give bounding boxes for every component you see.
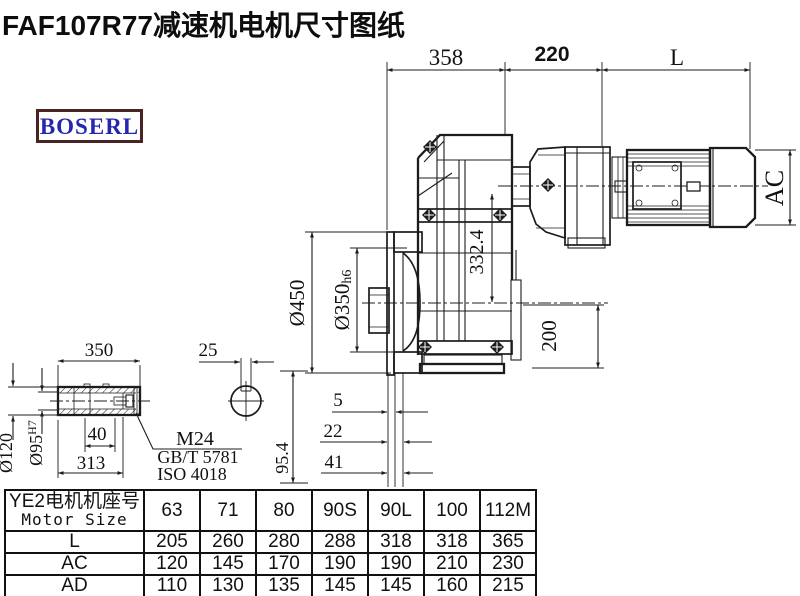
dim-450: Ø450: [285, 280, 309, 327]
cell: 145: [200, 553, 256, 575]
header-cn: YE2电机机座号: [6, 492, 143, 512]
table-row: L 205 260 280 288 318 318 365: [5, 531, 536, 553]
dim-5: 5: [333, 390, 343, 411]
col-90S: 90S: [312, 490, 368, 531]
row-label-L: L: [5, 531, 144, 553]
cell: 135: [256, 575, 312, 596]
dim-350: 350: [85, 340, 114, 361]
cell: 288: [312, 531, 368, 553]
cell: 160: [424, 575, 480, 596]
col-90L: 90L: [368, 490, 424, 531]
dim-40: 40: [88, 424, 107, 445]
cell: 170: [256, 553, 312, 575]
hollow-shaft-detail: [58, 384, 140, 415]
extension-lines: [8, 62, 796, 487]
cell: 260: [200, 531, 256, 553]
table-header-row: YE2电机机座号 Motor Size 63 71 80 90S 90L 100…: [5, 490, 536, 531]
cell: 215: [480, 575, 536, 596]
cell: 110: [144, 575, 200, 596]
dim-120: Ø120: [0, 433, 16, 473]
input-adapter: [512, 147, 627, 248]
cell: 145: [312, 575, 368, 596]
dim-350h6: Ø350h6: [330, 270, 355, 331]
col-112M: 112M: [480, 490, 536, 531]
table-header-motor-size: YE2电机机座号 Motor Size: [5, 490, 144, 531]
table-row: AC 120 145 170 190 190 210 230: [5, 553, 536, 575]
motor-size-table: YE2电机机座号 Motor Size 63 71 80 90S 90L 100…: [4, 489, 537, 596]
output-flange: [369, 232, 422, 375]
dim-22: 22: [324, 421, 343, 442]
label-iso-4018: ISO 4018: [157, 464, 227, 484]
header-en: Motor Size: [6, 512, 143, 529]
col-80: 80: [256, 490, 312, 531]
technical-drawing: 358 220 L AC 332.4 Ø450 Ø350h6 200 5 22 …: [0, 0, 800, 490]
dim-L: L: [670, 45, 684, 70]
cell: 365: [480, 531, 536, 553]
dim-358: 358: [429, 45, 464, 70]
dim-95-4: 95.4: [272, 442, 292, 474]
dim-200: 200: [537, 320, 561, 352]
cell: 120: [144, 553, 200, 575]
cell: 318: [424, 531, 480, 553]
drawing-page: FAF107R77减速机电机尺寸图纸 BOSERL: [0, 0, 800, 596]
col-71: 71: [200, 490, 256, 531]
col-63: 63: [144, 490, 200, 531]
dim-332-4: 332.4: [466, 230, 488, 275]
center-lines: [50, 186, 768, 421]
cell: 190: [312, 553, 368, 575]
cell: 190: [368, 553, 424, 575]
cell: 318: [368, 531, 424, 553]
cell: 210: [424, 553, 480, 575]
cell: 145: [368, 575, 424, 596]
cell: 130: [200, 575, 256, 596]
col-100: 100: [424, 490, 480, 531]
cell: 230: [480, 553, 536, 575]
dim-95h7: Ø95H7: [25, 420, 46, 466]
dim-220: 220: [534, 43, 569, 66]
row-label-AC: AC: [5, 553, 144, 575]
table-row: AD 110 130 135 145 145 160 215: [5, 575, 536, 596]
dim-25: 25: [199, 340, 218, 361]
cell: 280: [256, 531, 312, 553]
dim-313: 313: [77, 453, 106, 474]
dimension-lines: [13, 70, 790, 483]
row-label-AD: AD: [5, 575, 144, 596]
dim-AC: AC: [760, 170, 789, 206]
dim-41: 41: [325, 452, 344, 473]
motor: [627, 148, 755, 227]
cell: 205: [144, 531, 200, 553]
